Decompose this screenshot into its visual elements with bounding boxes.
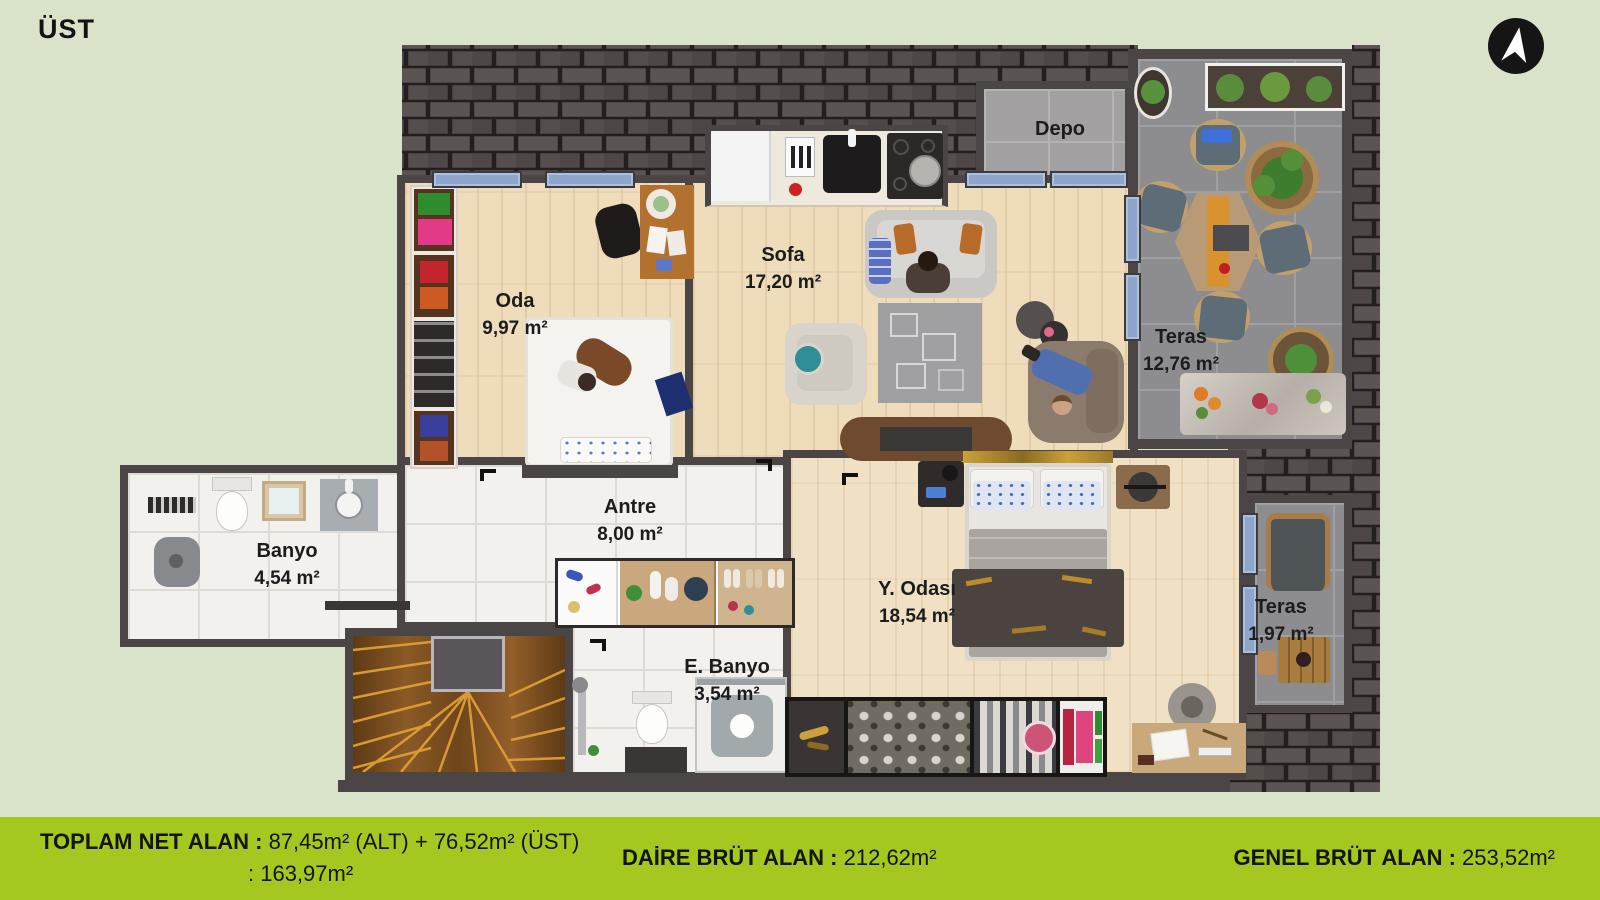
keyboard bbox=[1198, 747, 1232, 756]
wardrobe-boxes bbox=[1060, 701, 1103, 773]
bathroom-mirror bbox=[262, 481, 306, 521]
toilet bbox=[216, 491, 248, 531]
radiator bbox=[148, 497, 196, 513]
window bbox=[1050, 171, 1128, 188]
oda-desk bbox=[640, 185, 694, 279]
small-pot bbox=[1258, 651, 1276, 675]
staircase bbox=[345, 628, 573, 780]
pink-wheel bbox=[1022, 721, 1056, 755]
floorplan-page: { "header": { "floor_label": "ÜST" }, "i… bbox=[0, 0, 1600, 900]
kitchen-sink bbox=[823, 135, 881, 193]
oda-bed bbox=[525, 317, 673, 467]
pan bbox=[909, 155, 941, 187]
hanging-clothes bbox=[414, 321, 454, 407]
genel-brut-area: GENEL BRÜT ALAN : 253,52m² bbox=[1233, 845, 1555, 871]
wardrobe-clothes bbox=[974, 701, 1056, 773]
bedroom-wardrobe bbox=[785, 697, 1107, 777]
stove-knob bbox=[789, 183, 802, 196]
door-mark bbox=[842, 473, 846, 485]
terrace-armchair bbox=[1266, 513, 1330, 591]
window bbox=[545, 171, 635, 188]
console-slipper-shelf bbox=[718, 561, 792, 625]
toilet-tank bbox=[632, 691, 672, 704]
person-oda-head bbox=[578, 373, 596, 391]
hall-console bbox=[555, 558, 795, 628]
person-recliner-head bbox=[1052, 395, 1072, 415]
console-vase-shelf bbox=[620, 561, 716, 625]
cooktop bbox=[887, 133, 943, 199]
headboard bbox=[963, 451, 1113, 463]
bedroom-desk bbox=[1132, 723, 1246, 773]
shower-head bbox=[572, 677, 588, 693]
bath-cabinet bbox=[625, 747, 687, 773]
area-summary-bar: TOPLAM NET ALAN : 87,45m² (ALT) + 76,52m… bbox=[0, 817, 1600, 900]
stair-landing bbox=[431, 636, 505, 692]
rug bbox=[878, 303, 982, 403]
window bbox=[432, 171, 522, 188]
north-arrow-icon bbox=[1488, 18, 1544, 74]
terrace-table bbox=[1278, 637, 1330, 683]
laundry-basket bbox=[154, 537, 200, 587]
bed-footboard bbox=[522, 465, 678, 478]
bottom-wall bbox=[338, 780, 1230, 792]
toaster bbox=[785, 137, 815, 177]
patterned-pillow bbox=[1043, 481, 1101, 511]
total-net-area-sum: : 163,97m² bbox=[248, 861, 353, 887]
pillow bbox=[560, 437, 652, 463]
oval-plant-pot bbox=[1134, 67, 1172, 119]
oda-wardrobe bbox=[410, 185, 458, 469]
window bbox=[965, 171, 1047, 188]
person-sofa-head bbox=[918, 251, 938, 271]
side-table-teal bbox=[792, 343, 824, 375]
terrace-chair bbox=[1258, 223, 1312, 276]
vanity-sink bbox=[320, 479, 378, 531]
fridge bbox=[711, 131, 771, 201]
toilet-tank bbox=[212, 477, 252, 491]
blue-blanket bbox=[869, 238, 891, 284]
nightstand-left bbox=[918, 461, 964, 507]
floor-plan: Oda9,97 m² Sofa17,20 m² Depo Teras12,76 … bbox=[120, 45, 1380, 792]
toilet bbox=[636, 704, 668, 744]
laptop bbox=[1213, 225, 1249, 251]
stone-planter bbox=[1180, 373, 1346, 435]
door-mark bbox=[480, 469, 484, 481]
patterned-pillow bbox=[973, 481, 1031, 511]
window bbox=[1124, 273, 1141, 341]
door-mark bbox=[602, 639, 606, 651]
wardrobe-shoes bbox=[848, 701, 971, 773]
nightstand-right bbox=[1116, 465, 1170, 509]
terrace-chair bbox=[1196, 125, 1240, 165]
door-mark bbox=[768, 459, 772, 471]
room-depo bbox=[976, 81, 1133, 183]
window bbox=[1241, 585, 1258, 655]
cushion bbox=[959, 223, 983, 255]
shower-area bbox=[695, 677, 787, 773]
planter-box bbox=[1205, 63, 1345, 111]
console-white-cabinet bbox=[558, 561, 618, 625]
wardrobe-bags bbox=[789, 701, 844, 773]
palm-plant bbox=[1245, 141, 1319, 215]
towel-rail bbox=[325, 601, 410, 610]
total-net-area: TOPLAM NET ALAN : 87,45m² (ALT) + 76,52m… bbox=[40, 829, 579, 855]
cushion bbox=[893, 223, 917, 255]
faucet bbox=[848, 129, 856, 147]
bed-throw bbox=[952, 569, 1124, 647]
floor-label: ÜST bbox=[38, 14, 95, 45]
window bbox=[1241, 513, 1258, 575]
plant-small bbox=[588, 745, 599, 756]
shower-pole bbox=[578, 685, 586, 755]
kitchen-counter bbox=[705, 125, 948, 207]
window bbox=[1124, 195, 1141, 263]
terrace-chair bbox=[1198, 295, 1248, 342]
daire-brut-area: DAİRE BRÜT ALAN : 212,62m² bbox=[622, 845, 937, 871]
